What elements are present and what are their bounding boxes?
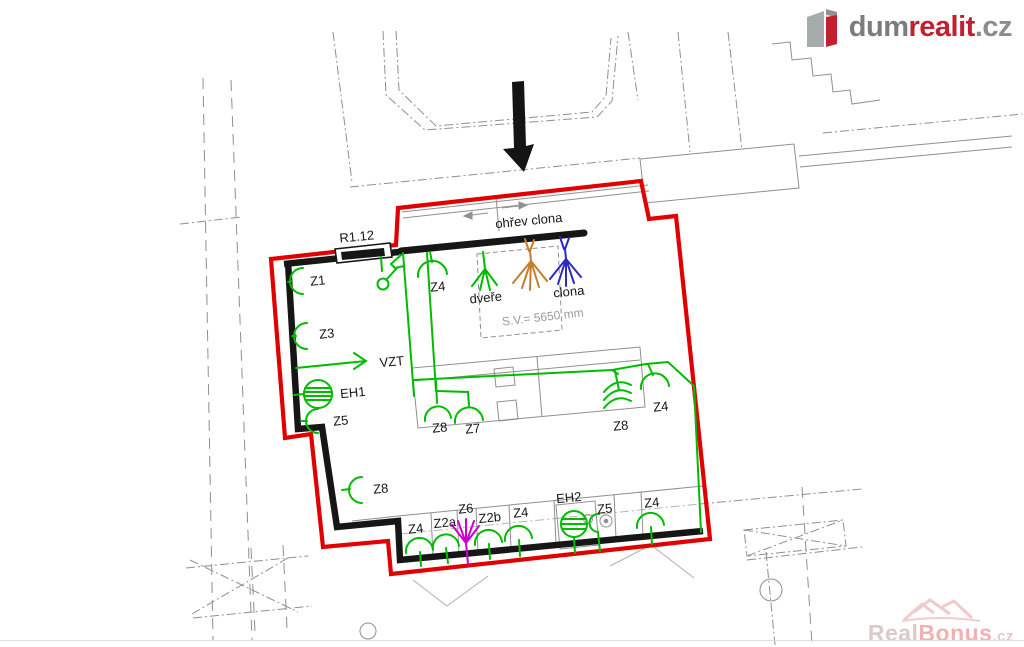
device-label-z4-bottom-2: Z4 — [512, 504, 529, 520]
device-label-z5-left: Z5 — [332, 412, 349, 428]
device-label-z8-left: Z8 — [372, 480, 389, 496]
device-label-z4-right: Z4 — [652, 398, 669, 414]
heater-curtain-label: ohřev clona — [495, 210, 564, 231]
dumrealit-logo-text: dumrealit.cz — [849, 13, 1012, 42]
bottom-divider — [0, 640, 1024, 641]
logo-highlight: realit — [908, 11, 974, 43]
realbonus-watermark: RealBonus.cz — [868, 598, 1014, 645]
vzt-label: VZT — [379, 353, 405, 370]
device-label-z6: Z6 — [457, 500, 474, 516]
ceiling-height-label: S.V.= 5650 mm — [501, 305, 584, 328]
device-label-z5-bottom: Z5 — [596, 500, 613, 516]
device-label-z8-right: Z8 — [612, 417, 629, 433]
door-sensor-symbol — [483, 252, 485, 269]
curtain-symbol — [550, 237, 581, 286]
device-label-eh2: EH2 — [555, 489, 582, 506]
curtain-label: clona — [553, 282, 586, 300]
logo-tld: .cz — [975, 11, 1012, 43]
device-label-z1: Z1 — [309, 272, 326, 288]
device-label-z4-bottom-3: Z4 — [643, 494, 660, 510]
heater-curtain-beam — [401, 233, 584, 251]
door-label: dveře — [469, 288, 503, 306]
device-label-z7: Z7 — [464, 420, 481, 436]
floor-plan-image: R1.12 ohřev clona dveře clona S.V.= 5650… — [0, 0, 1024, 647]
curtain-heater-symbol — [513, 239, 547, 290]
realbonus-watermark-text: RealBonus.cz — [868, 622, 1014, 645]
logo-prefix: dum — [849, 11, 909, 43]
dumrealit-logo: dumrealit.cz — [806, 7, 1012, 47]
device-label-z2a: Z2a — [433, 514, 458, 531]
watermark-tld: .cz — [992, 628, 1014, 645]
realbonus-roofs-icon — [900, 598, 982, 622]
device-label-z8-mid: Z8 — [431, 419, 448, 435]
floor-plan-svg: R1.12 ohřev clona dveře clona S.V.= 5650… — [0, 0, 1024, 647]
device-label-eh1: EH1 — [339, 384, 366, 401]
down-arrow-icon — [503, 81, 534, 172]
switch-symbol — [381, 257, 382, 271]
distribution-board-symbol — [335, 243, 392, 263]
device-label-z4-bottom-1: Z4 — [407, 520, 424, 536]
device-label-z4-door: Z4 — [429, 278, 446, 294]
dumrealit-logo-icon — [806, 7, 840, 47]
device-label-z3: Z3 — [318, 325, 335, 341]
eh1-heater-symbol — [304, 380, 332, 408]
watermark-highlight: Bonus — [918, 620, 992, 646]
watermark-prefix-text: Real — [868, 620, 919, 646]
board-label: R1.12 — [339, 227, 375, 245]
device-label-z2b: Z2b — [478, 509, 502, 526]
